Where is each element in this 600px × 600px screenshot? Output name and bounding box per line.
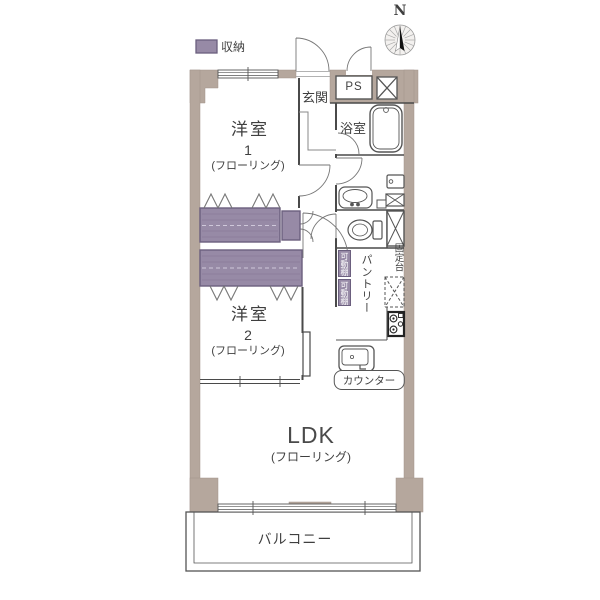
room2-sliding-door	[303, 332, 310, 376]
ps-label: PS	[345, 82, 362, 94]
room1-floor-label: (フローリング)	[211, 161, 284, 172]
ldk-label: LDK	[287, 424, 335, 447]
movable-shelf-label-2: 可動棚	[338, 279, 351, 306]
kitchen-sink-icon	[339, 346, 374, 371]
compass-north-label: N	[394, 4, 407, 18]
legend-label: 収納	[221, 41, 245, 53]
room1-number: 1	[244, 143, 252, 157]
room2-floor-label: (フローリング)	[211, 346, 284, 357]
compass-rose-icon	[385, 25, 415, 55]
genkan-label: 玄関	[302, 91, 328, 104]
floor-plan-drawing	[0, 0, 600, 600]
toilet-icon	[348, 220, 382, 240]
pantry-label: パントリー	[360, 254, 371, 314]
closet-small	[282, 211, 300, 240]
washing-machine-space-icon	[387, 211, 404, 246]
legend-swatch	[196, 40, 217, 53]
room2-number: 2	[244, 328, 252, 342]
meter-box-icon	[377, 77, 397, 99]
bathtub-icon	[370, 105, 402, 152]
closet-room1	[200, 208, 280, 242]
movable-shelf-label-1: 可動棚	[338, 250, 351, 277]
cabinet-icon	[386, 175, 404, 206]
closet-room2	[200, 250, 302, 286]
fixed-shelf-label: 固定台	[393, 243, 403, 272]
room2-label: 洋室	[231, 306, 269, 323]
room1-label: 洋室	[231, 121, 269, 138]
ldk-floor-label: (フローリング)	[271, 451, 351, 463]
washbasin-icon	[339, 187, 372, 208]
genkan-step-line	[299, 112, 336, 150]
stove-icon	[388, 312, 404, 336]
bathroom-label: 浴室	[340, 122, 366, 135]
counter-label: カウンター	[334, 370, 405, 390]
toilet-shelf-box	[377, 200, 386, 208]
balcony-label: バルコニー	[258, 532, 333, 546]
fixed-shelf-icon	[385, 277, 404, 307]
floor-plan: 収納 N 玄関 PS 浴室 洋室 1 (フローリング) 洋室 2 (フローリング…	[0, 0, 600, 600]
window-room1	[218, 67, 278, 81]
